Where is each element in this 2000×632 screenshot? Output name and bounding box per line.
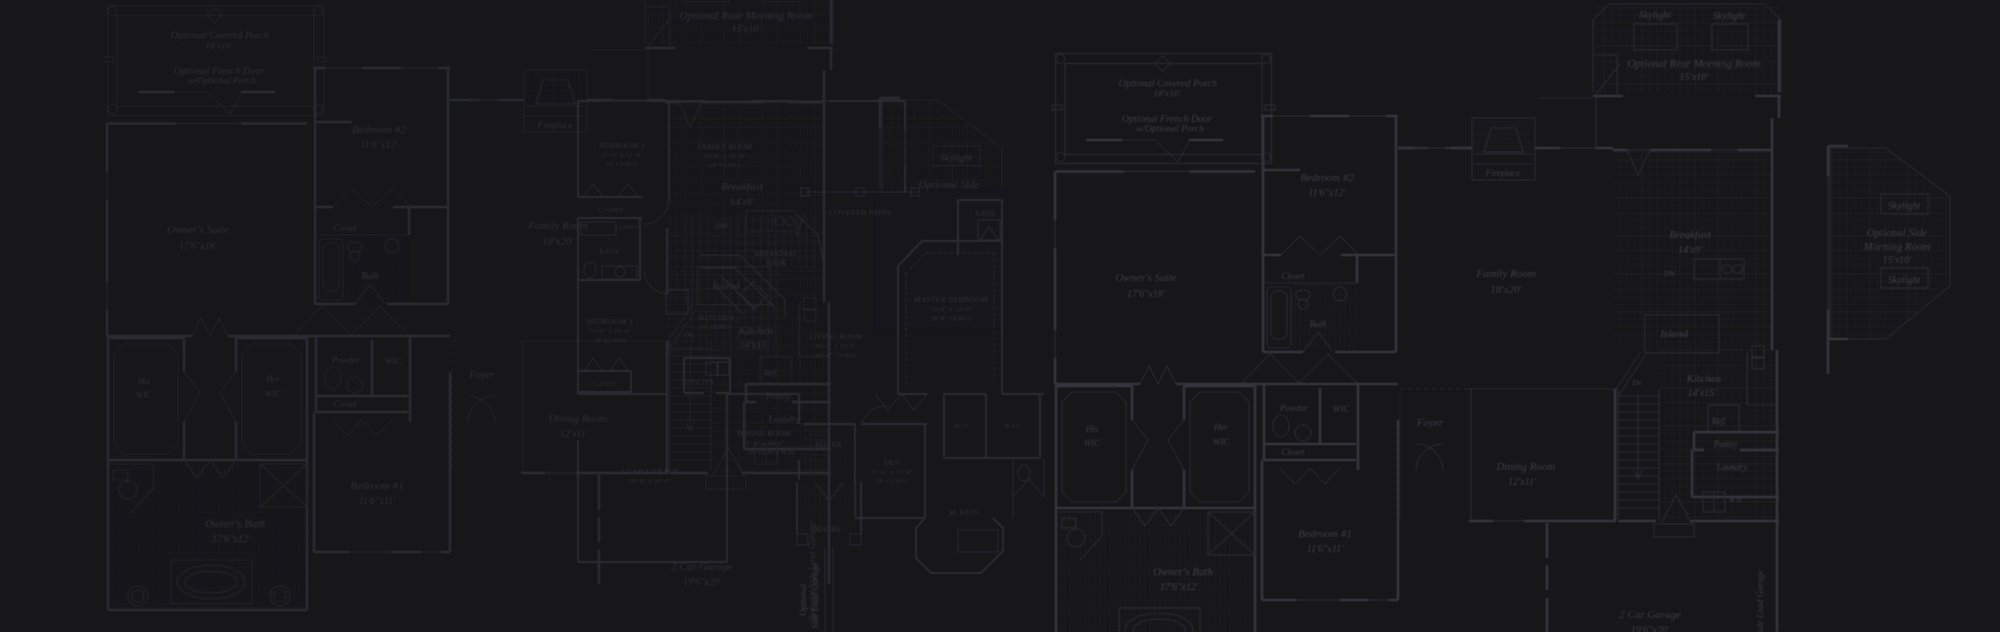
svg-text:11'-0" x 11'-4": 11'-0" x 11'-4" <box>601 152 643 159</box>
svg-text:16'-0" x 15'-0": 16'-0" x 15'-0" <box>815 343 858 350</box>
svg-text:(9'-8" CLNG): (9'-8" CLNG) <box>931 315 971 322</box>
svg-text:CLOSET: CLOSET <box>591 381 617 388</box>
svg-text:11'-0" x 10'-0": 11'-0" x 10'-0" <box>589 328 631 335</box>
svg-text:Side Load Garage: Side Load Garage <box>810 563 820 629</box>
svg-text:BEDROOM 2: BEDROOM 2 <box>599 141 645 150</box>
svg-text:FOYER: FOYER <box>816 440 842 449</box>
svg-text:BREAKFAST: BREAKFAST <box>754 250 797 258</box>
svg-text:M. BATH: M. BATH <box>949 509 979 517</box>
svg-text:Optional: Optional <box>798 584 808 617</box>
svg-text:(9' CLNG): (9' CLNG) <box>749 449 780 456</box>
svg-text:BATH: BATH <box>599 248 618 256</box>
svg-text:15'-4" x 15'-0": 15'-4" x 15'-0" <box>930 306 973 313</box>
svg-text:11'-0" x 14'-0": 11'-0" x 14'-0" <box>743 440 785 447</box>
svg-text:(9' CLNG): (9' CLNG) <box>877 478 908 485</box>
svg-text:15'-0" x 19'-0": 15'-0" x 19'-0" <box>704 153 747 160</box>
svg-text:COVERED PATIO: COVERED PATIO <box>829 208 891 217</box>
svg-text:LIVING ROOM: LIVING ROOM <box>809 332 863 341</box>
svg-text:KITCHEN: KITCHEN <box>699 313 734 322</box>
svg-text:UTILITY: UTILITY <box>685 379 715 387</box>
svg-text:(9' CLNG): (9' CLNG) <box>710 162 741 169</box>
svg-text:DINING ROOM: DINING ROOM <box>737 429 791 438</box>
svg-text:BATH: BATH <box>975 210 994 218</box>
svg-text:2 CAR GARAGE: 2 CAR GARAGE <box>621 467 679 476</box>
svg-text:MASTER BEDROOM: MASTER BEDROOM <box>914 295 988 304</box>
svg-text:11'-0" x 11'-0": 11'-0" x 11'-0" <box>871 469 913 476</box>
svg-text:ENTRY: ENTRY <box>817 526 841 534</box>
svg-text:CLOSET: CLOSET <box>598 207 624 214</box>
svg-text:FAMILY ROOM: FAMILY ROOM <box>698 142 753 151</box>
svg-text:(9' CLNG): (9' CLNG) <box>607 161 638 168</box>
svg-text:W.I.C.: W.I.C. <box>1005 423 1024 430</box>
svg-text:20'-0" x 20'-0": 20'-0" x 20'-0" <box>629 478 672 485</box>
svg-text:DEN: DEN <box>884 458 901 467</box>
svg-text:(9' CLNG): (9' CLNG) <box>701 324 732 331</box>
svg-text:(9' CLNG): (9' CLNG) <box>595 337 626 344</box>
svg-text:W.I.C.: W.I.C. <box>954 423 973 430</box>
svg-text:NOOK: NOOK <box>765 259 786 267</box>
svg-text:(9'-8" CLNG): (9'-8" CLNG) <box>816 352 856 359</box>
svg-text:BEDROOM 3: BEDROOM 3 <box>587 317 633 326</box>
svg-text:LINEN: LINEN <box>619 225 639 231</box>
